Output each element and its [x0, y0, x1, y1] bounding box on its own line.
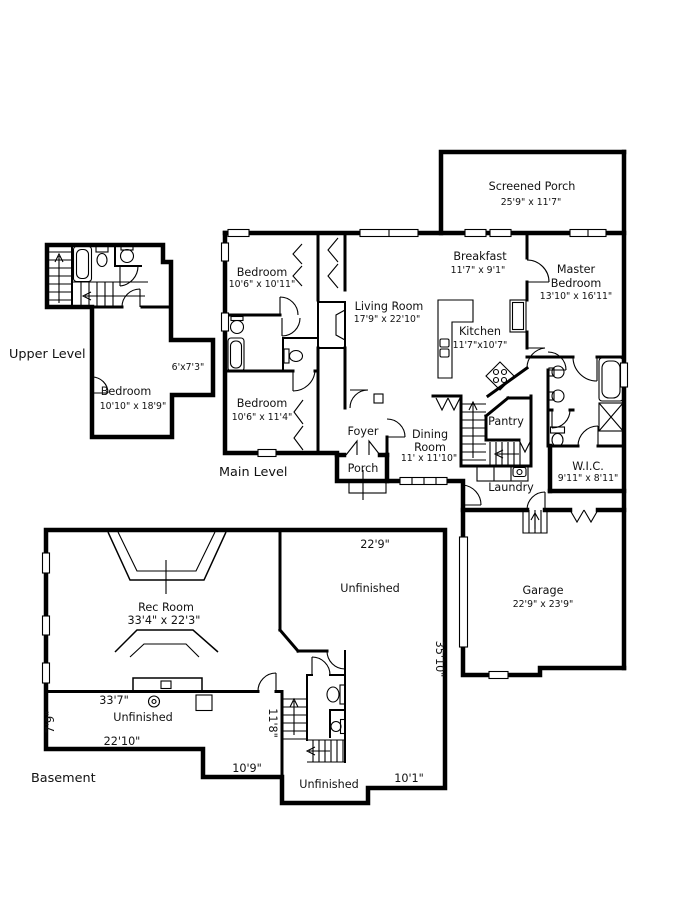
master-shower-icon: [599, 403, 623, 431]
upper-toilet-icon: [96, 246, 108, 267]
room-dims-living-room: 17'9" x 22'10": [354, 314, 420, 325]
upper-sink-icon: [121, 246, 134, 263]
room-label-screened-porch: Screened Porch: [489, 180, 576, 193]
hall-toilet-icon: [284, 349, 303, 363]
dim-label-35-10: 35'10": [433, 641, 446, 678]
room-label-breakfast: Breakfast: [453, 250, 507, 263]
room-label-unfinished-upper: Unfinished: [340, 582, 399, 595]
room-label-garage: Garage: [523, 584, 564, 597]
room-dims-screened-porch: 25'9" x 11'7": [501, 197, 562, 208]
room-label-bedroom-front: Bedroom: [237, 266, 288, 279]
main-stairs-down: [490, 442, 520, 466]
room-label-bedroom-back: Bedroom: [237, 397, 288, 410]
main-stairs-up: [461, 402, 486, 460]
room-label-master-bedroom-1: Master: [557, 263, 596, 276]
room-label-rec-room: Rec Room: [138, 601, 194, 614]
room-label-unfinished-lower: Unfinished: [299, 778, 358, 791]
basement-windows: [43, 553, 50, 683]
room-dims-master-bedroom: 13'10" x 16'11": [540, 291, 612, 302]
dim-label-10-9: 10'9": [232, 762, 262, 775]
dim-label-33-7: 33'7": [99, 694, 129, 707]
level-label-main: Main Level: [219, 465, 287, 480]
upper-bathtub-icon: [74, 247, 92, 282]
room-dims-bedroom-front: 10'6" x 10'11": [229, 279, 295, 290]
master-toilet-icon: [551, 427, 565, 447]
upper-level-plan: Upper Level Bedroom 10'10" x 18'9" 6'x7'…: [9, 245, 213, 437]
room-label-foyer: Foyer: [348, 425, 379, 438]
dim-label-11-8: 11'8": [266, 708, 279, 738]
hall-bathtub-icon: [228, 338, 244, 371]
room-label-porch: Porch: [348, 462, 379, 475]
utility-icons: [149, 695, 213, 711]
basement-doors: [258, 651, 345, 692]
room-dims-wic: 9'11" x 8'11": [558, 473, 619, 484]
room-dims-bedroom-back: 10'6" x 11'4": [232, 412, 293, 423]
washer-dryer-icons: [477, 466, 528, 481]
refrigerator-icon: [510, 300, 526, 332]
basement-toilet-icon: [327, 685, 345, 704]
room-label-master-bedroom-2: Bedroom: [551, 277, 602, 290]
upper-level-doors: [92, 266, 140, 393]
dim-label-10-1: 10'1": [394, 772, 424, 785]
upper-level-labels: Upper Level Bedroom 10'10" x 18'9" 6'x7'…: [9, 347, 204, 412]
master-bathtub-icon: [599, 358, 623, 401]
basement-labels: Rec Room 33'4" x 22'3" Unfinished Unfini…: [31, 538, 446, 791]
hall-sink-icon: [231, 317, 244, 334]
room-label-unfinished-left: Unfinished: [113, 711, 172, 724]
room-dims-rec-room: 33'4" x 22'3": [128, 614, 201, 627]
level-label-basement: Basement: [31, 771, 96, 786]
garage-stairs: [523, 510, 547, 533]
room-label-dining-1: Dining: [412, 428, 448, 441]
basement-stairs: [282, 699, 345, 762]
room-dims-breakfast: 11'7" x 9'1": [451, 265, 506, 276]
basement-plan: Rec Room 33'4" x 22'3" Unfinished Unfini…: [31, 530, 446, 803]
closet-bifold-icons: [293, 238, 338, 450]
room-dims-upper-bedroom: 10'10" x 18'9": [100, 401, 166, 412]
room-label-pantry: Pantry: [488, 415, 524, 428]
room-label-laundry: Laundry: [488, 481, 534, 494]
room-label-upper-bedroom: Bedroom: [101, 385, 152, 398]
floor-plan-page: Screened Porch 25'9" x 11'7" Bedroom 10'…: [0, 0, 700, 906]
room-dims-garage: 22'9" x 23'9": [513, 599, 574, 610]
media-console-icon: [133, 678, 202, 692]
floor-plan-drawing: Screened Porch 25'9" x 11'7" Bedroom 10'…: [0, 0, 700, 906]
fireplace-icon: [318, 302, 345, 348]
room-dims-upper-nook: 6'x7'3": [172, 362, 205, 373]
rec-room-sectional: [115, 630, 218, 657]
room-dims-kitchen: 11'7"x10'7": [453, 340, 508, 351]
garage-door-icon: [460, 537, 468, 647]
room-dims-dining: 11' x 11'10": [401, 453, 457, 464]
column-icon: [374, 394, 383, 403]
dim-label-22-9: 22'9": [360, 538, 390, 551]
dim-label-7-9: 7'9": [44, 711, 57, 733]
room-label-wic: W.I.C.: [572, 460, 604, 473]
dim-label-22-10: 22'10": [104, 735, 141, 748]
room-label-kitchen: Kitchen: [459, 325, 501, 338]
kitchen-counter: [438, 300, 473, 378]
level-label-upper: Upper Level: [9, 347, 86, 362]
rec-room-bay-window: [108, 532, 226, 594]
room-label-living-room: Living Room: [355, 300, 424, 313]
basement-sink-icon: [331, 720, 345, 734]
master-sink-icons: [549, 366, 564, 402]
